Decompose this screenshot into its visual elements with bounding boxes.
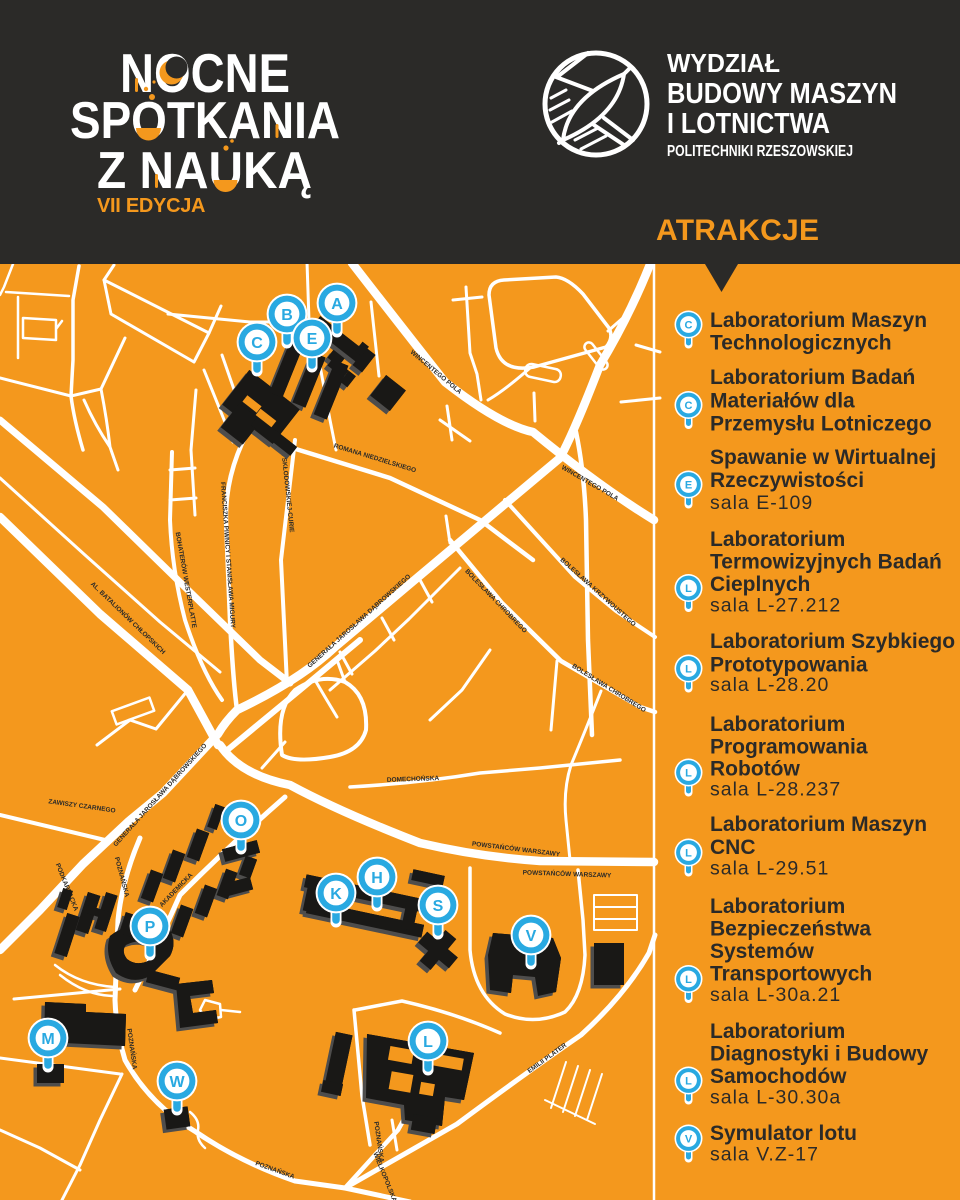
svg-text:L: L <box>685 1076 692 1088</box>
svg-text:O: O <box>235 813 247 830</box>
svg-text:Materiałów dla: Materiałów dla <box>710 390 855 413</box>
svg-text:Laboratorium Badań: Laboratorium Badań <box>710 366 915 389</box>
svg-text:Z NAUKĄ: Z NAUKĄ <box>97 142 312 200</box>
svg-text:CNC: CNC <box>710 836 756 859</box>
svg-text:H: H <box>371 870 383 887</box>
svg-text:sala L-28.20: sala L-28.20 <box>710 674 829 696</box>
svg-text:L: L <box>685 768 692 780</box>
svg-text:L: L <box>685 974 692 986</box>
svg-text:I LOTNICTWA: I LOTNICTWA <box>667 108 830 140</box>
svg-text:M: M <box>41 1031 54 1048</box>
svg-text:Transportowych: Transportowych <box>710 963 872 986</box>
svg-text:S: S <box>433 898 444 915</box>
svg-text:Laboratorium Maszyn: Laboratorium Maszyn <box>710 309 927 332</box>
svg-text:BUDOWY MASZYN: BUDOWY MASZYN <box>667 78 897 110</box>
svg-text:ATRAKCJE: ATRAKCJE <box>656 214 819 247</box>
svg-text:Laboratorium: Laboratorium <box>710 1020 845 1043</box>
svg-text:Termowizyjnych Badań: Termowizyjnych Badań <box>710 551 942 574</box>
svg-text:Laboratorium: Laboratorium <box>710 528 845 551</box>
svg-text:C: C <box>251 335 263 352</box>
svg-text:Systemów: Systemów <box>710 940 815 963</box>
svg-text:C: C <box>685 320 693 332</box>
svg-text:V: V <box>685 1134 693 1146</box>
svg-text:Spawanie w Wirtualnej: Spawanie w Wirtualnej <box>710 446 936 469</box>
svg-text:V: V <box>526 928 537 945</box>
svg-text:Programowania: Programowania <box>710 736 868 759</box>
svg-text:Technologicznych: Technologicznych <box>710 332 892 355</box>
svg-text:L: L <box>685 664 692 676</box>
svg-text:sala L-30.30a: sala L-30.30a <box>710 1087 841 1109</box>
svg-text:E: E <box>307 331 318 348</box>
svg-text:VII EDYCJA: VII EDYCJA <box>97 195 207 217</box>
svg-text:sala V.Z-17: sala V.Z-17 <box>710 1144 819 1166</box>
svg-text:sala L-27.212: sala L-27.212 <box>710 595 841 617</box>
svg-text:WYDZIAŁ: WYDZIAŁ <box>667 48 780 78</box>
svg-text:A: A <box>331 296 343 313</box>
svg-text:Robotów: Robotów <box>710 758 800 781</box>
svg-text:Laboratorium: Laboratorium <box>710 895 845 918</box>
svg-text:K: K <box>330 886 342 903</box>
svg-text:Laboratorium Maszyn: Laboratorium Maszyn <box>710 813 927 836</box>
svg-text:W: W <box>169 1074 185 1091</box>
svg-text:POLITECHNIKI RZESZOWSKIEJ: POLITECHNIKI RZESZOWSKIEJ <box>667 143 853 160</box>
svg-text:Przemysłu Lotniczego: Przemysłu Lotniczego <box>710 413 932 436</box>
svg-text:B: B <box>281 307 293 324</box>
svg-text:L: L <box>423 1034 433 1051</box>
svg-text:sala L-30a.21: sala L-30a.21 <box>710 984 841 1006</box>
svg-text:Diagnostyki i Budowy: Diagnostyki i Budowy <box>710 1043 929 1066</box>
svg-text:Symulator lotu: Symulator lotu <box>710 1122 857 1145</box>
svg-text:Bezpieczeństwa: Bezpieczeństwa <box>710 918 871 941</box>
svg-text:Samochodów: Samochodów <box>710 1065 847 1088</box>
svg-text:sala L-29.51: sala L-29.51 <box>710 858 829 880</box>
svg-text:sala E-109: sala E-109 <box>710 492 813 514</box>
svg-text:P: P <box>145 919 156 936</box>
svg-text:Laboratorium: Laboratorium <box>710 713 845 736</box>
svg-text:C: C <box>685 400 693 412</box>
svg-text:Laboratorium Szybkiego: Laboratorium Szybkiego <box>710 630 955 653</box>
svg-text:Rzeczywistości: Rzeczywistości <box>710 469 864 492</box>
svg-text:L: L <box>685 848 692 860</box>
svg-text:L: L <box>685 583 692 595</box>
svg-text:Cieplnych: Cieplnych <box>710 573 810 596</box>
svg-text:E: E <box>685 480 692 492</box>
svg-text:sala L-28.237: sala L-28.237 <box>710 779 841 801</box>
